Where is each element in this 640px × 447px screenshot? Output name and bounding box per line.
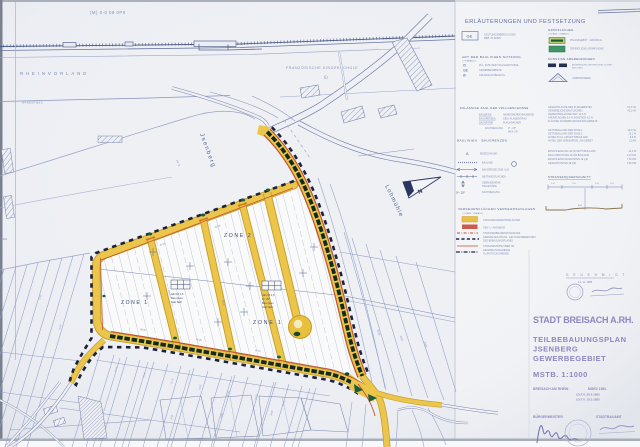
- svg-text:Gde Tach: Gde Tach: [171, 300, 183, 304]
- svg-text:BAUGRENZEN: BAUGRENZEN: [479, 118, 496, 121]
- svg-text:I.D.F.V. 10.5.1985: I.D.F.V. 10.5.1985: [576, 398, 600, 402]
- svg-text:FRANZÖSISCHE KINDERSCHULE: FRANZÖSISCHE KINDERSCHULE: [286, 66, 358, 70]
- svg-text:( § 9 BBAUG ): ( § 9 BBAUG ): [462, 60, 476, 63]
- svg-text:Gde Tach: Gde Tach: [262, 305, 274, 309]
- svg-text:(M) 0-0 08 0P9: (M) 0-0 08 0P9: [90, 10, 126, 15]
- svg-text:SONSTIGE ABGRENZUNGEN: SONSTIGE ABGRENZUNGEN: [548, 57, 595, 61]
- svg-text:GRÜNFLÄCHEN: GRÜNFLÄCHEN: [548, 28, 574, 32]
- svg-text:ABGRENZUNG UNTERSCHIEDLICHER: ABGRENZUNG UNTERSCHIEDLICHER: [572, 64, 612, 67]
- svg-text:Bau Quen: Bau Quen: [171, 296, 183, 300]
- svg-text:WANDERWEG: WANDERWEG: [22, 101, 43, 105]
- svg-text:GEWERBEGEBIETE: GEWERBEGEBIETE: [479, 69, 502, 72]
- svg-text:0°- 25°: 0°- 25°: [262, 297, 270, 301]
- svg-text:TRAUFHÖHE: TRAUFHÖHE: [482, 185, 497, 188]
- svg-text:GEM. PLANEINTRAG: GEM. PLANEINTRAG: [503, 118, 527, 121]
- svg-text:ERSCHLIESSUNGSKOSTEN JE QM: ERSCHLIESSUNGSKOSTEN JE QM: [548, 158, 588, 161]
- svg-text:BÜRGERMEISTER: BÜRGERMEISTER: [533, 414, 563, 419]
- svg-text:GEWERBEGEBIET: GEWERBEGEBIET: [533, 354, 606, 363]
- svg-text:2,10 DM: 2,10 DM: [627, 154, 636, 157]
- svg-text:GEH- U. RADWEGE: GEH- U. RADWEGE: [483, 227, 505, 230]
- svg-text:STADTBAUAMT: STADTBAUAMT: [596, 415, 623, 419]
- svg-text:UMSPANNWERK: UMSPANNWERK: [572, 77, 591, 80]
- svg-text:STRASSENBEGRENZUNGSLINIE: STRASSENBEGRENZUNGSLINIE: [483, 232, 521, 235]
- svg-text:7,50 DM: 7,50 DM: [627, 158, 636, 161]
- svg-text:MÄRZ 1981: MÄRZ 1981: [588, 387, 606, 391]
- svg-text:JSENBERG: JSENBERG: [533, 345, 578, 354]
- svg-text:DACHFORM: DACHFORM: [479, 122, 493, 125]
- svg-text:ZULÄSSIGE ZAHL DER VOLLGESCHO: ZULÄSSIGE ZAHL DER VOLLGESCHOSSE: [460, 106, 529, 110]
- svg-text:BAULINIEN · BAUGRENZEN: BAULINIEN · BAUGRENZEN: [457, 139, 507, 143]
- svg-text:ABSTANDSFLÄCHEN: ABSTANDSFLÄCHEN: [482, 176, 506, 179]
- svg-text:GESAMTKOSTEN JE QM: GESAMTKOSTEN JE QM: [548, 162, 576, 165]
- svg-text:GRUNDFLÄCHENZAHL: GRUNDFLÄCHENZAHL: [479, 74, 506, 77]
- svg-text:BEZEICHNUNG: BEZEICHNUNG: [480, 153, 498, 156]
- svg-text:ZONE 1: ZONE 1: [121, 300, 149, 306]
- svg-text:ERLÄUTERUNGEN UND FESTSETZUN: ERLÄUTERUNGEN UND FESTSETZUNG: [465, 18, 586, 25]
- svg-text:DACHNEIGUNG: DACHNEIGUNG: [482, 191, 500, 194]
- svg-text:42,1 HA: 42,1 HA: [627, 110, 636, 113]
- svg-text:MSTB. 1:1000: MSTB. 1:1000: [533, 370, 588, 379]
- svg-text:BEB. PLANES: BEB. PLANES: [484, 36, 501, 40]
- svg-text:ZONE 1: ZONE 1: [253, 320, 283, 326]
- svg-text:KEN: KEN: [1, 237, 7, 241]
- svg-text:( § 9 ABS. 1 BBAUG ): ( § 9 ABS. 1 BBAUG ): [548, 33, 570, 36]
- svg-text:BREISACH AM RHEIN: BREISACH AM RHEIN: [533, 387, 569, 391]
- svg-text:Bau Quen: Bau Quen: [262, 301, 274, 305]
- svg-text:STRASSENVERKEHRSFLÄCHEN: STRASSENVERKEHRSFLÄCHEN: [483, 219, 520, 222]
- svg-text:FLACHDÄCHER: FLACHDÄCHER: [503, 122, 521, 125]
- svg-text:ZUL. ZAHL DER VOLLGESCHOSSE: ZUL. ZAHL DER VOLLGESCHOSSE: [479, 64, 519, 67]
- svg-text:DACHNEIGUNG: DACHNEIGUNG: [485, 127, 503, 130]
- svg-text:STRASSENQUERSCHNITT: STRASSENQUERSCHNITT: [548, 175, 591, 179]
- svg-text:( § 9 ABS. 1 BBAUG ): ( § 9 ABS. 1 BBAUG ): [462, 212, 484, 215]
- svg-text:DES BEBAUUNGSPLANES: DES BEBAUUNGSPLANES: [483, 240, 513, 243]
- svg-text:Ø: Ø: [463, 74, 466, 78]
- svg-text:TEILBEBAUUNGSPLAN: TEILBEBAUUNGSPLAN: [533, 335, 627, 344]
- svg-text:PFLANZGEBOT · GRÜNZUG: PFLANZGEBOT · GRÜNZUG: [570, 39, 602, 42]
- svg-text:0°- 25°: 0°- 25°: [456, 191, 466, 195]
- svg-text:STRASSENHÖHE ÜBER NN: STRASSENHÖHE ÜBER NN: [483, 245, 514, 248]
- svg-text:STADT BREISACH A.RH.: STADT BREISACH A.RH.: [533, 315, 634, 325]
- svg-text:ERSCHLIESSUNG JE HA NETTOBAULA: ERSCHLIESSUNG JE HA NETTOBAULAND: [548, 150, 596, 153]
- svg-text:GELTUNGSBEREICH DES: GELTUNGSBEREICH DES: [484, 33, 516, 37]
- svg-text:ÖFFENTLICHE GRÜNFLÄCHE: ÖFFENTLICHE GRÜNFLÄCHE: [570, 48, 604, 51]
- svg-text:FLURSTÜCKSGRENZE: FLURSTÜCKSGRENZE: [483, 253, 509, 256]
- svg-text:41,2 M: 41,2 M: [629, 150, 636, 153]
- svg-text:9,60 DM: 9,60 DM: [627, 162, 636, 165]
- svg-text:ZONE 2: ZONE 2: [224, 233, 252, 239]
- svg-text:I.D.F.V. 30.4.1985: I.D.F.V. 30.4.1985: [576, 393, 600, 397]
- svg-text:GE 0,8 1,6: GE 0,8 1,6: [262, 293, 275, 297]
- svg-text:12,4%: 12,4%: [629, 140, 637, 143]
- svg-text:G E N E H M I G T: G E N E H M I G T: [566, 273, 626, 277]
- svg-text:MAX. 25°: MAX. 25°: [508, 131, 518, 134]
- svg-text:GE 0,8 1,6: GE 0,8 1,6: [171, 292, 184, 296]
- svg-text:RHEINVORLAND: RHEINVORLAND: [20, 71, 89, 76]
- svg-text:BAULINIE: BAULINIE: [482, 162, 493, 165]
- svg-text:BAUGRENZE GEM. § 23: BAUGRENZE GEM. § 23: [482, 169, 510, 172]
- svg-text:BAULANDKOSTEN JE QM BAULAND: BAULANDKOSTEN JE QM BAULAND: [548, 154, 589, 157]
- svg-text:VERKEHRSFLÄCHEN VERKEHRSANLAG: VERKEHRSFLÄCHEN VERKEHRSANLAGEN: [458, 207, 536, 211]
- svg-text:GE: GE: [463, 69, 469, 73]
- svg-text:GE: GE: [467, 34, 473, 39]
- svg-text:BAUWEISE: BAUWEISE: [479, 114, 492, 117]
- svg-text:ABWEICHENDE BAUWEISE: ABWEICHENDE BAUWEISE: [503, 114, 534, 117]
- svg-text:FLÄCHEN AUSSERHALB DER BAUGEBI: FLÄCHEN AUSSERHALB DER BAUGEBIETE: [548, 120, 598, 123]
- svg-text:14. 11. 1985: 14. 11. 1985: [578, 280, 593, 284]
- svg-text:NUTZUNG: NUTZUNG: [572, 68, 583, 70]
- svg-text:ART DER BAULICHEN NUTZUNG: ART DER BAULICHEN NUTZUNG: [462, 55, 521, 59]
- svg-text:ANTEIL DER VERKEHRSFL. AM GEBI: ANTEIL DER VERKEHRSFL. AM GEBIET: [548, 140, 593, 143]
